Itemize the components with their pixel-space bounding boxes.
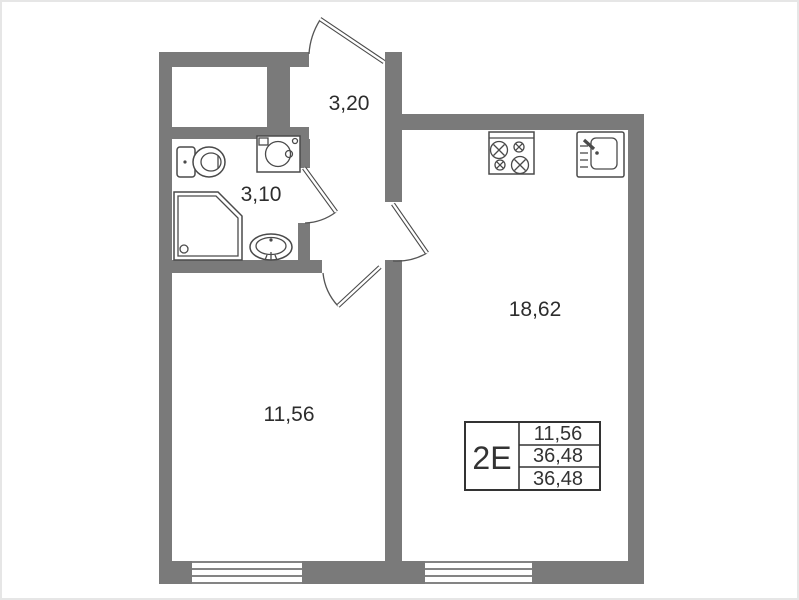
room-label-hallway: 3,20 xyxy=(329,92,370,115)
stamp-row-total-area: 36,48 xyxy=(533,445,583,467)
toilet-icon xyxy=(177,147,225,177)
unit-stamp: 2Е 11,56 36,48 36,48 xyxy=(465,422,600,490)
stamp-unit-type: 2Е xyxy=(472,440,511,476)
window-living-room xyxy=(425,561,532,584)
window-bedroom xyxy=(192,561,302,584)
wall-kitchen-top xyxy=(398,114,644,130)
stamp-row-living-area: 11,56 xyxy=(534,423,583,445)
wall-outer-right xyxy=(628,114,644,584)
walls xyxy=(159,52,644,584)
kitchen-sink-icon xyxy=(577,132,624,177)
room-label-bathroom: 3,10 xyxy=(241,183,282,206)
wall-room-divider xyxy=(385,260,402,584)
room-label-bedroom: 11,56 xyxy=(264,403,315,426)
stove-icon xyxy=(489,132,534,174)
room-label-kitchen-living-room: 18,62 xyxy=(509,298,562,321)
kitchen-door xyxy=(393,204,427,261)
stamp-row-overall-area: 36,48 xyxy=(533,468,583,490)
shower-icon xyxy=(174,192,242,260)
washing-machine-icon xyxy=(257,136,300,172)
floor-plan: 3,20 3,10 18,62 11,56 2Е 11,56 36,48 36,… xyxy=(2,2,799,600)
entry-door xyxy=(309,19,384,62)
bathroom-door xyxy=(304,168,336,223)
wall-shaft-block xyxy=(267,62,290,129)
wall-bathroom-east-lower xyxy=(298,223,310,260)
floor-plan-canvas: 3,20 3,10 18,62 11,56 2Е 11,56 36,48 36,… xyxy=(0,0,799,600)
bedroom-door xyxy=(323,267,380,306)
wall-bathroom-bottom xyxy=(159,260,322,273)
bathroom-sink-icon xyxy=(250,234,292,260)
